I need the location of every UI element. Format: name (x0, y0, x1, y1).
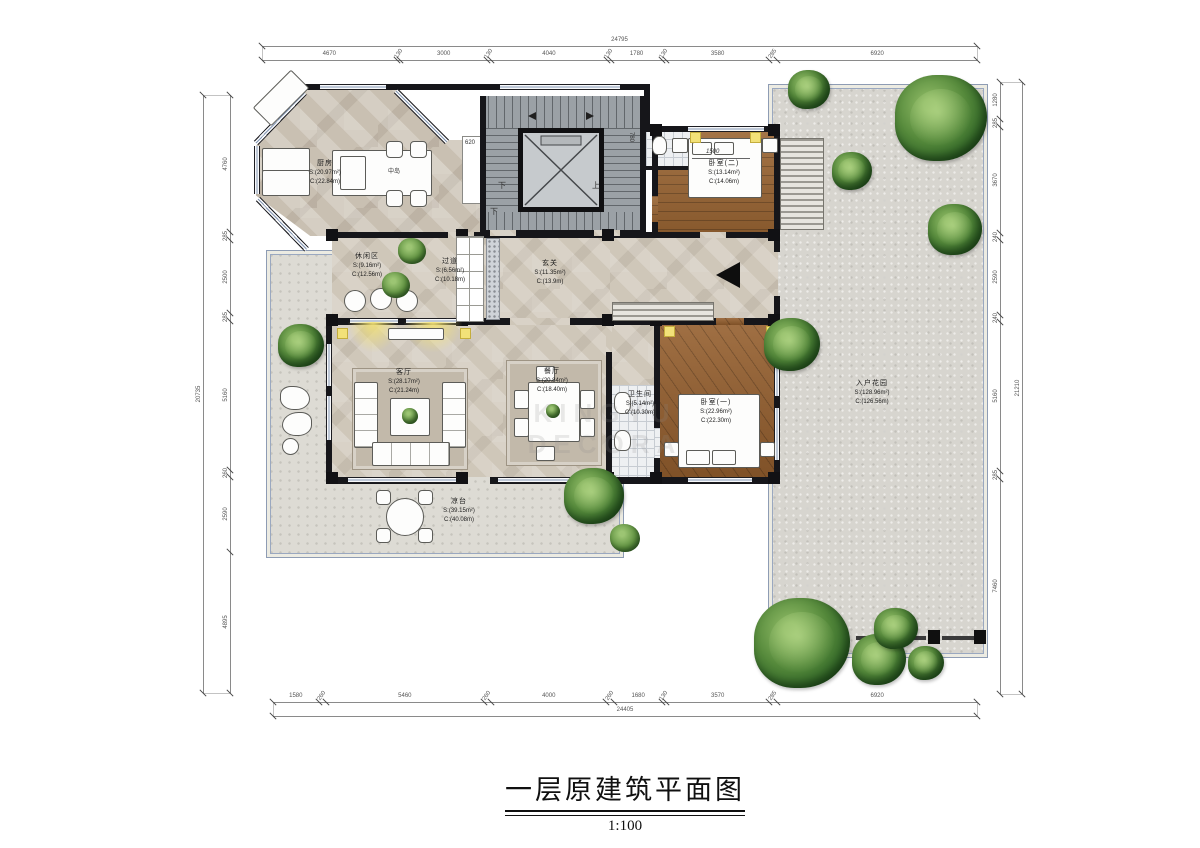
room-name: 凉台 (443, 497, 475, 507)
stairs-down-label: 下 (498, 180, 506, 191)
wall-light (750, 132, 761, 143)
stair-flight-left (482, 128, 518, 212)
wall-light (690, 132, 701, 143)
island-sink (340, 156, 366, 190)
dim-value: 4040 (542, 51, 555, 57)
room-name: 过道 (435, 257, 465, 267)
dim-ext (1000, 694, 1022, 695)
bar-chair (410, 141, 427, 158)
lounge-chair (282, 412, 312, 436)
lounge-chair (280, 386, 310, 410)
room-area-c: C:(40.08m) (443, 516, 475, 525)
dim-total-line-top (262, 46, 977, 47)
dim-value: 285 (993, 118, 999, 128)
title-block: 一层原建筑平面图 1:100 (470, 768, 780, 835)
dim-ext (1000, 82, 1022, 83)
window (320, 84, 386, 90)
table-plant (402, 408, 418, 424)
bar-chair (386, 141, 403, 158)
tree-icon (398, 238, 426, 264)
nightstand (760, 442, 775, 457)
dim-value: 285 (993, 470, 999, 480)
column (456, 472, 468, 484)
garden-deck (780, 138, 824, 230)
elevator-x-icon (523, 133, 599, 207)
room-label-corridor: 过道S:(6.56m²)C:(10.18m) (435, 257, 465, 285)
room-name: 厨房 (309, 159, 341, 169)
island-label: 中岛 (388, 166, 400, 175)
patio-chair (376, 528, 391, 543)
nightstand (762, 138, 778, 153)
dim-value: 5160 (223, 389, 229, 402)
room-label-bedroom-1: 卧室(一)S:(22.96m²)C:(22.30m) (700, 398, 732, 426)
dim-total: 20735 (196, 386, 202, 403)
dim-value: 1280 (993, 94, 999, 107)
room-area-s: S:(128.96m²) (854, 389, 889, 398)
kitchen-counter (262, 170, 310, 196)
dim-line-right (1000, 82, 1001, 694)
dim-value: 3570 (711, 693, 724, 699)
door-opening (606, 326, 612, 352)
stair-arrow-icon (528, 112, 536, 120)
room-area-s: S:(9.16m²) (352, 262, 382, 271)
room-name: 客厅 (388, 368, 420, 378)
dim-value: 4760 (223, 157, 229, 170)
room-name: 餐厅 (536, 367, 568, 377)
dim-value: 130 (604, 48, 615, 60)
column (768, 472, 780, 484)
dim-value: 285 (768, 690, 779, 702)
dim-value: 5460 (398, 693, 411, 699)
dim-value: 3670 (993, 173, 999, 186)
column (650, 124, 662, 136)
dim-value: 1680 (632, 693, 645, 699)
column (650, 472, 662, 484)
room-area-c: C:(126.56m) (854, 398, 889, 407)
stair-flight-right (604, 128, 643, 212)
room-area-c: C:(14.06m) (708, 178, 740, 187)
decorative-screen (486, 238, 500, 320)
page-title: 一层原建筑平面图 (470, 768, 780, 807)
dim-value: 4895 (223, 616, 229, 629)
room-area-c: C:(12.56m) (352, 271, 382, 280)
room-area-c: C:(18.40m) (536, 386, 568, 395)
room-label-dining: 餐厅S:(20.84m²)C:(18.40m) (536, 367, 568, 395)
dim-total-line-bottom (273, 716, 977, 717)
column (768, 124, 780, 136)
door-opening (652, 196, 658, 222)
gate-post (974, 630, 986, 644)
door-opening (700, 232, 726, 238)
room-area-s: S:(5.14m²) (625, 400, 655, 409)
dim-value: 4000 (542, 693, 555, 699)
window (688, 477, 752, 483)
sofa (354, 382, 378, 448)
room-area-s: S:(6.56m²) (435, 267, 465, 276)
dim-total: 24795 (611, 37, 628, 43)
room-label-foyer: 玄关S:(11.35m²)C:(13.9m) (534, 259, 565, 287)
room-area-s: S:(13.14m²) (708, 169, 740, 178)
room-area-c: C:(10.30m) (625, 409, 655, 418)
dim-value: 130 (659, 690, 670, 702)
wall (480, 96, 486, 236)
patio-chair (376, 490, 391, 505)
dim-line-top (262, 60, 977, 61)
dim-total-line-right (1022, 82, 1023, 694)
dim-value: 260 (482, 690, 493, 702)
stairs-up-label: 上 (592, 180, 600, 191)
elevator-shaft (518, 128, 604, 212)
dim-line-bottom (273, 702, 977, 703)
dim-total: 21210 (1015, 380, 1021, 397)
dim-value: 130 (659, 48, 670, 60)
bay-window (254, 146, 260, 194)
tree-icon (382, 272, 410, 298)
column (768, 229, 780, 241)
dim-value: 285 (223, 231, 229, 241)
stair-depth-label: 780 (628, 132, 634, 142)
room-label-living: 客厅S:(28.17m²)C:(21.24m) (388, 368, 420, 396)
toilet (652, 136, 667, 155)
wall-light (664, 326, 675, 337)
gate-post (928, 630, 940, 644)
patio-chair (418, 528, 433, 543)
room-area-c: C:(22.84m) (309, 178, 341, 187)
dim-ext (203, 95, 230, 96)
column (602, 229, 614, 241)
nightstand (672, 138, 688, 153)
dim-ext (203, 693, 230, 694)
column (326, 229, 338, 241)
room-name: 入户花园 (854, 379, 889, 389)
dim-value: 285 (223, 312, 229, 322)
tree-icon (610, 524, 640, 552)
door-opening (716, 318, 744, 325)
stair-arrow-icon (586, 112, 594, 120)
window (326, 344, 332, 386)
dim-value: 260 (223, 468, 229, 478)
bed-width-label: 1500 (706, 149, 719, 155)
room-area-s: S:(11.35m²) (534, 269, 565, 278)
dim-value: 2500 (223, 270, 229, 283)
dim-value: 6920 (871, 693, 884, 699)
stairs-down-label2: 下 (490, 206, 498, 217)
room-label-veranda: 凉台S:(39.15m²)C:(40.08m) (443, 497, 475, 525)
room-area-c: C:(21.24m) (388, 387, 420, 396)
dim-value: 5160 (993, 389, 999, 402)
room-name: 卧室(二) (708, 159, 740, 169)
column (326, 472, 338, 484)
tree-icon (754, 598, 850, 688)
dim-value: 4670 (323, 51, 336, 57)
room-area-c: C:(22.30m) (700, 417, 732, 426)
floor-plan-page: 中岛 1500 620 780 下 下 上 KINGYU DECORA 一层原建… (0, 0, 1200, 848)
bar-chair (386, 190, 403, 207)
round-chair (344, 290, 366, 312)
entry-door-icon (716, 262, 740, 288)
dim-value: 260 (605, 690, 616, 702)
title-underline (505, 810, 745, 812)
kitchen-counter (262, 148, 310, 172)
room-area-s: S:(28.17m²) (388, 378, 420, 387)
room-label-bath: 卫生间S:(5.14m²)C:(10.30m) (625, 390, 655, 418)
foyer-wardrobe (612, 302, 714, 321)
room-area-c: C:(13.9m) (534, 278, 565, 287)
drawing-scale: 1:100 (470, 818, 780, 835)
tree-icon (908, 646, 944, 680)
room-name: 玄关 (534, 259, 565, 269)
room-area-s: S:(22.96m²) (700, 408, 732, 417)
room-name: 卧室(一) (700, 398, 732, 408)
room-name: 卫生间 (625, 390, 655, 400)
wall (640, 96, 646, 236)
dim-value: 1780 (630, 51, 643, 57)
room-label-bedroom-2: 卧室(二)S:(13.14m²)C:(14.06m) (708, 159, 740, 187)
room-label-entry-garden: 入户花园S:(128.96m²)C:(126.56m) (854, 379, 889, 407)
window (500, 84, 620, 90)
dim-value: 260 (317, 690, 328, 702)
dim-value: 1580 (289, 693, 302, 699)
room-area-c: C:(10.18m) (435, 276, 465, 285)
dim-total: 24405 (617, 707, 634, 713)
dim-value: 6920 (871, 51, 884, 57)
bar-chair (410, 190, 427, 207)
dim-value: 3580 (711, 51, 724, 57)
sofa (372, 442, 450, 466)
room-label-lounge: 休闲区S:(9.16m²)C:(12.56m) (352, 252, 382, 280)
room-name: 休闲区 (352, 252, 382, 262)
dim-value: 7460 (993, 580, 999, 593)
dim-line-left (230, 95, 231, 693)
dim-value: 3000 (437, 51, 450, 57)
opening (510, 318, 570, 325)
dim-total-line-left (203, 95, 204, 693)
room-area-s: S:(20.97m²) (309, 169, 341, 178)
garden-fence (942, 636, 976, 640)
dim-value: 2590 (223, 508, 229, 521)
wall-light (460, 328, 471, 339)
dim-value: 2590 (993, 271, 999, 284)
window (326, 396, 332, 440)
patio-chair (418, 490, 433, 505)
side-table (282, 438, 299, 455)
room-area-s: S:(20.84m²) (536, 377, 568, 386)
tv-cabinet (388, 328, 444, 340)
title-underline-2 (505, 815, 745, 816)
room-label-kitchen: 厨房S:(20.97m²)C:(22.84m) (309, 159, 341, 187)
wall-light (337, 328, 348, 339)
stair-width-label: 620 (465, 140, 475, 146)
dim-value: 240 (993, 313, 999, 323)
column (326, 314, 338, 326)
dim-value: 285 (768, 48, 779, 60)
dim-value: 240 (993, 231, 999, 241)
room-area-s: S:(39.15m²) (443, 507, 475, 516)
stair-exit (490, 230, 516, 236)
window (348, 477, 458, 483)
